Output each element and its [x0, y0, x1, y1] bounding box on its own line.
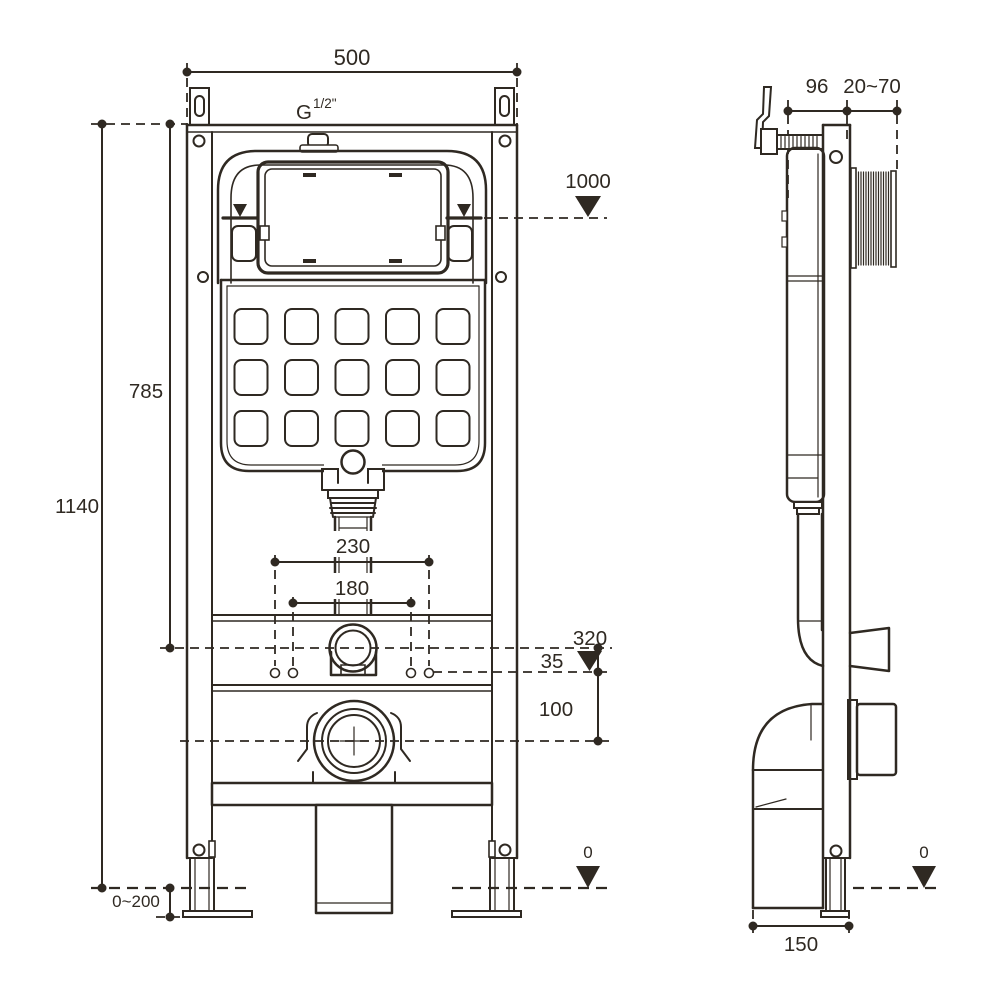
- tank-rib-grid: [235, 309, 470, 446]
- hanger-tab-left: [190, 88, 209, 125]
- technical-drawing-page: 1140 785 500 G 1/2": [0, 0, 1000, 1000]
- level-floor-front-label: 0: [583, 843, 592, 862]
- dim-adjust-label: 0~200: [112, 892, 160, 911]
- dim-offset-35-label: 35: [541, 650, 564, 673]
- concealed-cistern-frame-drawing: 1140 785 500 G 1/2": [0, 0, 1000, 1000]
- front-view: 1140 785 500 G 1/2": [55, 45, 612, 922]
- dim-width-500-label: 500: [334, 45, 371, 70]
- tank-cover: [218, 134, 486, 283]
- dim-spread-180: 180: [289, 573, 416, 666]
- foot-plate-left: [183, 911, 252, 917]
- drain-outlet: [298, 701, 410, 783]
- dim-height-785-label: 785: [129, 380, 163, 403]
- dim-height-1140: 1140: [55, 120, 187, 893]
- inlet-fitting: [330, 625, 377, 676]
- level-marker-1000: 1000: [484, 170, 611, 218]
- side-clip-right: [448, 226, 472, 261]
- leg-right: [452, 841, 521, 917]
- dim-width-500: 500: [183, 45, 522, 128]
- dim-spread-230-label: 230: [336, 535, 370, 558]
- thread-label-g: G: [296, 101, 312, 124]
- wall-sleeve-ribbed: [851, 168, 896, 268]
- access-window: [258, 162, 448, 273]
- drain-box: [316, 805, 392, 913]
- thread-label-size: 1/2": [313, 96, 337, 111]
- level-1000-label: 1000: [565, 170, 611, 193]
- dim-wall-range-label: 20~70: [843, 75, 901, 98]
- water-level-mark-left: [223, 204, 257, 218]
- level-floor-side-label: 0: [919, 843, 928, 862]
- side-clip-left: [232, 226, 256, 261]
- floor-level-side: 0: [853, 843, 940, 888]
- foot-plate-right: [452, 911, 521, 917]
- dim-depth-96-label: 96: [806, 75, 829, 98]
- drain-connector-stub: [857, 704, 896, 775]
- thread-label-g12: G 1/2": [296, 96, 337, 124]
- leg-left: [183, 841, 252, 917]
- drain-elbow: [753, 700, 896, 908]
- bottom-rail: [212, 783, 492, 805]
- cistern-side: [782, 148, 824, 502]
- flush-pipe-side: [794, 502, 889, 671]
- water-level-mark-right: [447, 204, 481, 218]
- cistern-tank: [221, 280, 485, 499]
- side-view: 96 20~70: [749, 75, 941, 956]
- flush-connector-stub: [850, 628, 889, 671]
- level-1000-triangle: [575, 196, 601, 217]
- dim-offset-100-label: 100: [539, 698, 573, 721]
- dim-spread-180-label: 180: [335, 577, 369, 600]
- level-floor-side-triangle: [912, 866, 936, 888]
- cross-rails: [212, 615, 492, 691]
- frame-post-side: [823, 125, 850, 908]
- dim-height-785: 785: [129, 120, 175, 653]
- dim-height-1140-label: 1140: [55, 495, 99, 518]
- level-320-label: 320: [573, 627, 607, 650]
- leg-side: [821, 846, 850, 918]
- foot-plate-side: [821, 911, 849, 917]
- level-floor-front-triangle: [576, 866, 600, 888]
- hanger-tab-right: [495, 88, 514, 125]
- dim-base-150-label: 150: [784, 933, 818, 956]
- dim-stack-right: 35 100 320: [539, 627, 607, 746]
- dim-adjust-0-200: 0~200: [112, 884, 186, 922]
